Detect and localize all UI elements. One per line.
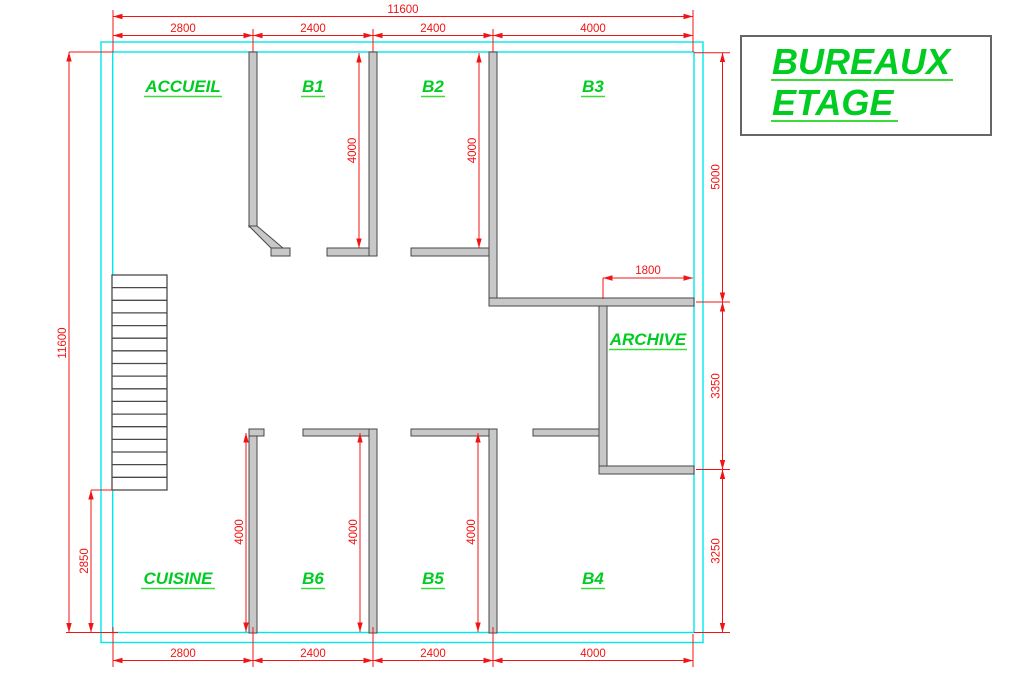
- dim-depth-cuisine: 4000: [234, 519, 246, 545]
- room-label-b1: B1: [302, 77, 324, 96]
- room-label-b3: B3: [582, 77, 604, 96]
- staircase-outline: [112, 275, 167, 490]
- room-label-accueil: ACCUEIL: [144, 77, 221, 96]
- dim-left-total: 11600: [57, 327, 69, 358]
- dim-bottom-seg2: 2400: [300, 648, 326, 660]
- room-label-b2: B2: [422, 77, 444, 96]
- wall-b2-b3: [489, 52, 497, 306]
- wall-archive-bottom: [599, 466, 694, 474]
- dim-right-seg3: 3250: [711, 538, 723, 564]
- title-line2: ETAGE: [772, 82, 894, 123]
- dim-archive-width: 1800: [635, 265, 661, 277]
- room-label-cuisine: CUISINE: [144, 569, 214, 588]
- wall-corridor-stub: [533, 429, 599, 436]
- wall-cuisine-b6-cap: [249, 429, 264, 436]
- dim-top-seg4: 4000: [580, 23, 606, 35]
- wall-b1-b2: [369, 52, 377, 256]
- wall-b1-stub: [327, 248, 369, 256]
- title-block: BUREAUX ETAGE: [741, 36, 991, 135]
- dim-bottom-seg3: 2400: [420, 648, 446, 660]
- wall-b5-stub: [411, 429, 489, 436]
- room-label-b6: B6: [302, 569, 324, 588]
- wall-b6-stub: [303, 429, 369, 436]
- wall-archive-left: [599, 306, 607, 474]
- dim-depth-b1: 4000: [347, 138, 359, 164]
- dim-right-seg2: 3350: [711, 373, 723, 399]
- room-label-archive: ARCHIVE: [609, 330, 687, 349]
- floor-plan-page: 11600 2800 2400 2400 4000 2800 2400 2400…: [0, 0, 1024, 674]
- floor-plan-canvas: 11600 2800 2400 2400 4000 2800 2400 2400…: [0, 0, 1024, 674]
- dim-depth-b5: 4000: [466, 519, 478, 545]
- dim-bottom-seg4: 4000: [580, 648, 606, 660]
- wall-b3-bottom: [489, 298, 694, 306]
- room-label-b4: B4: [582, 569, 604, 588]
- wall-b2-stub: [411, 248, 489, 256]
- dim-depth-b6: 4000: [348, 519, 360, 545]
- wall-b5-b4: [489, 429, 497, 633]
- dim-bottom-seg1: 2800: [170, 648, 196, 660]
- room-label-b5: B5: [422, 569, 444, 588]
- wall-accueil-door-stub: [271, 248, 290, 256]
- dim-right-seg1: 5000: [711, 164, 723, 190]
- wall-accueil-b1: [249, 52, 257, 227]
- title-line1: BUREAUX: [772, 41, 952, 82]
- dim-top-seg1: 2800: [170, 23, 196, 35]
- dim-depth-b2: 4000: [467, 138, 479, 164]
- dim-top-seg2: 2400: [300, 23, 326, 35]
- wall-b6-b5: [369, 429, 377, 633]
- wall-cuisine-b6: [249, 429, 257, 633]
- staircase: [112, 275, 167, 490]
- dim-left-lower: 2850: [79, 548, 91, 574]
- dim-top-total: 11600: [387, 4, 418, 16]
- dim-top-seg3: 2400: [420, 23, 446, 35]
